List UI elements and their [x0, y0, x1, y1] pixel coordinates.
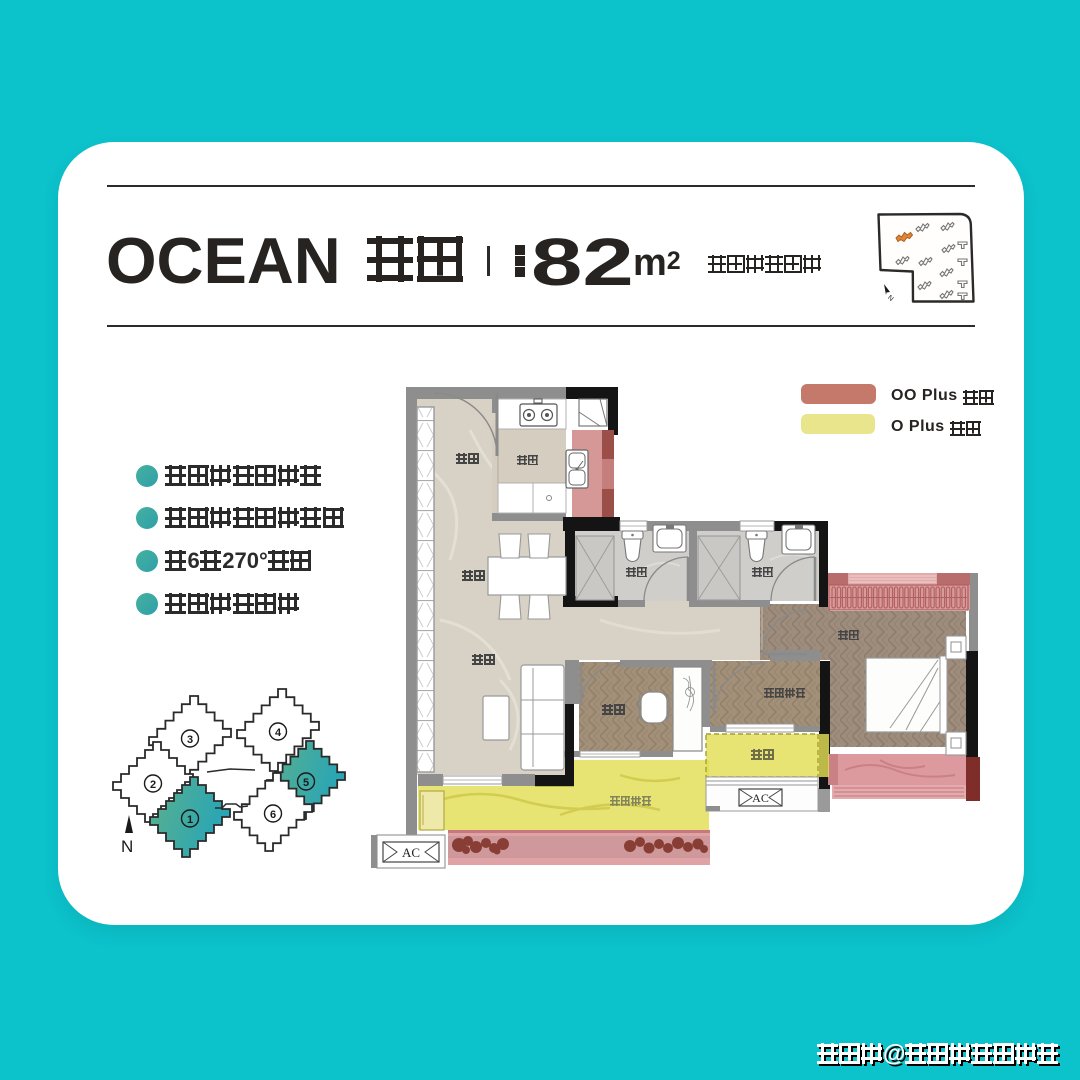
- svg-text:2: 2: [150, 779, 156, 791]
- svg-text:4: 4: [275, 727, 282, 739]
- svg-text:1: 1: [187, 814, 193, 826]
- svg-text:N: N: [121, 837, 133, 856]
- svg-text:3: 3: [187, 734, 193, 746]
- svg-text:N: N: [886, 294, 894, 303]
- svg-text:AC: AC: [752, 791, 769, 805]
- svg-text:AC: AC: [402, 845, 420, 860]
- svg-text:5: 5: [303, 777, 309, 789]
- svg-text:6: 6: [270, 809, 276, 821]
